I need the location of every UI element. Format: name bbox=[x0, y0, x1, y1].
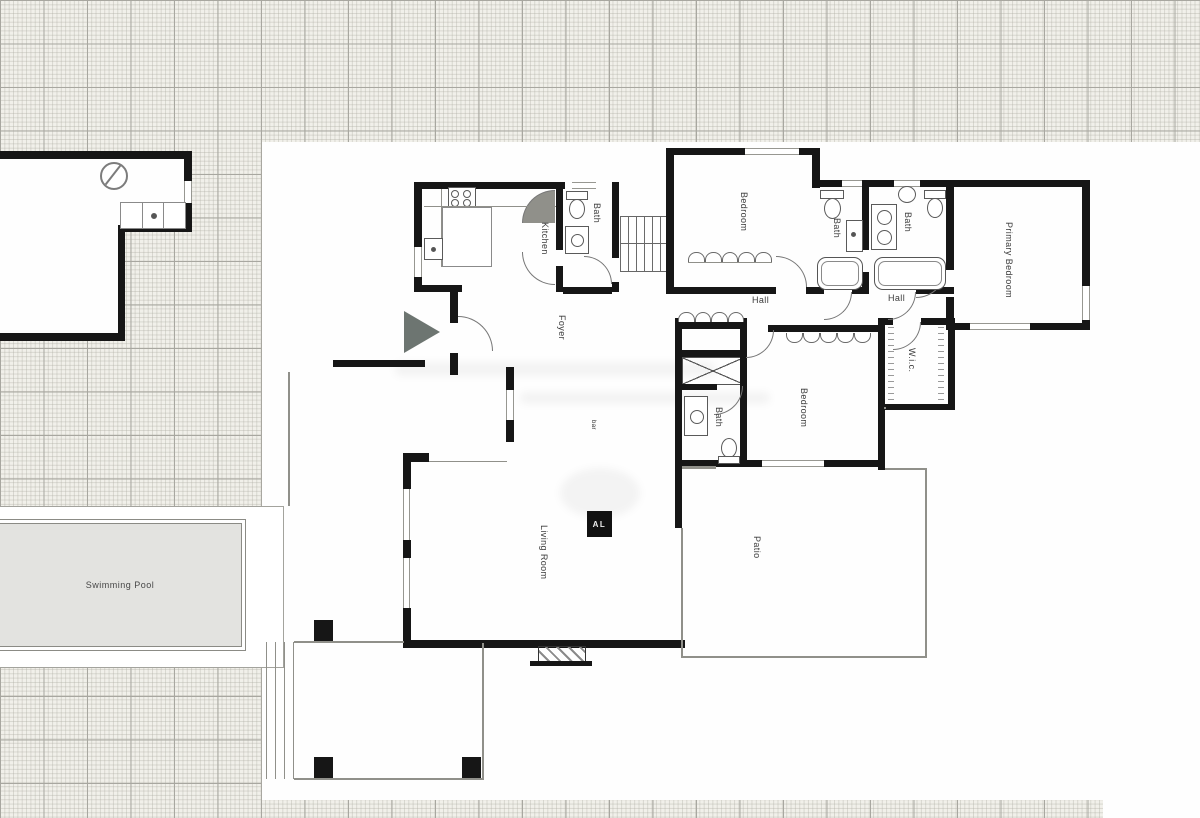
double-vanity bbox=[871, 204, 897, 250]
wall-living-west-b bbox=[403, 540, 411, 558]
forward-arrow-icon[interactable] bbox=[404, 311, 440, 353]
nook-window bbox=[506, 390, 514, 420]
garage-window bbox=[184, 181, 192, 203]
wall-bath-stairs-b bbox=[612, 282, 619, 292]
garage-wall-bottom bbox=[0, 333, 125, 341]
bedroom-lower-window bbox=[762, 460, 824, 467]
wall-bedroom-lower-top bbox=[768, 325, 885, 332]
round-sink-fixture bbox=[898, 186, 916, 203]
wall-bedroom-left bbox=[666, 148, 674, 294]
room-label-hall-b: Hall bbox=[888, 293, 905, 303]
bedroom-window bbox=[745, 148, 799, 155]
wall-bath-divider-a bbox=[862, 180, 869, 250]
bedroom-lower-closet-doors bbox=[786, 333, 878, 350]
garage-wall-right-a bbox=[184, 151, 192, 181]
bottom-grid-band bbox=[262, 800, 1103, 818]
room-label-bath-top: Bath bbox=[592, 203, 602, 223]
toilet-bowl bbox=[927, 198, 943, 218]
wall-kitchen-bath-a bbox=[556, 182, 563, 250]
walkway-line bbox=[288, 372, 290, 506]
floor-plan-canvas: Swimming Pool AL bbox=[0, 0, 1200, 818]
room-label-wic: W.i.c. bbox=[907, 348, 917, 372]
wall-closet-top bbox=[675, 322, 747, 329]
wall-living-west-a bbox=[403, 453, 411, 489]
room-label-bedroom-lower: Bedroom bbox=[799, 388, 809, 427]
wall-wic-right bbox=[948, 318, 955, 410]
patio-east-line bbox=[925, 470, 927, 658]
room-label-patio: Patio bbox=[752, 536, 762, 559]
primary-window bbox=[1082, 286, 1090, 320]
bathtub-fixture bbox=[874, 257, 946, 290]
electrical-symbol-slash bbox=[105, 165, 121, 185]
linen-closet-x bbox=[682, 357, 744, 385]
stair-landing-line bbox=[620, 243, 666, 244]
nook-sill-line bbox=[420, 461, 507, 462]
wall-bath-stairs-a bbox=[612, 182, 619, 258]
watermark-smudge bbox=[395, 362, 715, 376]
wall-baths-top bbox=[812, 180, 955, 187]
garage-wall-inner bbox=[118, 232, 125, 335]
porch-post bbox=[314, 620, 333, 641]
wall-bedroom-lower-right bbox=[878, 318, 885, 470]
swimming-pool-label: Swimming Pool bbox=[20, 580, 220, 590]
patio-south-line bbox=[683, 656, 927, 658]
wall-closet-mid bbox=[675, 350, 747, 357]
wall-wic-bottom bbox=[878, 404, 955, 410]
room-label-primary-bedroom: Primary Bedroom bbox=[1004, 222, 1014, 298]
bath-vanity bbox=[846, 220, 863, 252]
kitchen-island bbox=[442, 207, 492, 267]
porch-steps bbox=[266, 642, 296, 779]
patio-north-line bbox=[885, 468, 927, 470]
wall-hall-north bbox=[563, 287, 612, 294]
toilet-bowl bbox=[824, 198, 841, 219]
room-label-bedroom-upper: Bedroom bbox=[739, 192, 749, 231]
electrical-symbol-icon bbox=[100, 162, 128, 190]
bath-window bbox=[842, 180, 864, 187]
staircase bbox=[620, 216, 666, 272]
living-window-b bbox=[403, 558, 410, 608]
living-window-a bbox=[403, 489, 410, 540]
toilet-bowl bbox=[721, 438, 737, 458]
al-logo: AL bbox=[587, 511, 612, 537]
sink-faucet-dot bbox=[151, 213, 157, 219]
wall-bath-lower-top bbox=[675, 384, 717, 390]
room-label-foyer: Foyer bbox=[557, 315, 567, 340]
bath-sink-fixture bbox=[565, 226, 589, 254]
porch-post bbox=[462, 757, 481, 778]
toilet-tank bbox=[718, 456, 740, 464]
garage-wall-top bbox=[0, 151, 192, 159]
wall-foyer-left-a bbox=[450, 285, 458, 323]
porch-south-line bbox=[294, 778, 484, 780]
kitchen-sink-fixture bbox=[424, 238, 443, 260]
wall-primary-top bbox=[946, 180, 1090, 187]
kitchen-window bbox=[414, 247, 422, 277]
counter-divider bbox=[142, 203, 143, 228]
room-label-bath-hall-b: Bath bbox=[903, 212, 913, 232]
wall-primary-bottom-b bbox=[1030, 323, 1090, 330]
room-label-kitchen: Kitchen bbox=[540, 222, 550, 255]
room-label-living-room: Living Room bbox=[539, 525, 549, 579]
bath-vanity bbox=[684, 396, 708, 436]
patio-west-line bbox=[681, 528, 683, 658]
bath-threshold bbox=[682, 466, 716, 469]
hall-closet-doors bbox=[678, 306, 744, 322]
fireplace-base bbox=[530, 661, 592, 666]
wall-bedroom-bottom bbox=[666, 287, 776, 294]
garage-interior-lower bbox=[0, 232, 125, 341]
corner-dot bbox=[884, 407, 886, 409]
bath-window bbox=[572, 182, 596, 189]
wall-foyer-left-b bbox=[450, 353, 458, 375]
primary-patio-slider bbox=[970, 323, 1030, 330]
wall-kitchen-bath-b bbox=[556, 266, 563, 292]
wall-porch-north bbox=[333, 360, 425, 367]
room-label-bar: bar bbox=[588, 420, 598, 430]
room-label-bath-hall-a: Bath bbox=[832, 218, 842, 238]
toilet-bowl bbox=[569, 199, 585, 219]
room-label-hall-a: Hall bbox=[752, 295, 769, 305]
garage-counter bbox=[120, 202, 186, 229]
wall-kitchen-top bbox=[414, 182, 565, 189]
bedroom-closet-doors bbox=[688, 246, 772, 262]
bathtub-fixture bbox=[817, 257, 863, 290]
wic-shelving bbox=[938, 327, 944, 403]
wall-primary-left-a bbox=[946, 180, 954, 270]
porch-north-line bbox=[294, 641, 404, 643]
room-label-bath-lower: Bath bbox=[714, 407, 724, 427]
closet-track-line bbox=[688, 262, 772, 263]
porch-east-line bbox=[482, 643, 484, 780]
counter-divider bbox=[163, 203, 164, 228]
porch-post bbox=[314, 757, 333, 778]
